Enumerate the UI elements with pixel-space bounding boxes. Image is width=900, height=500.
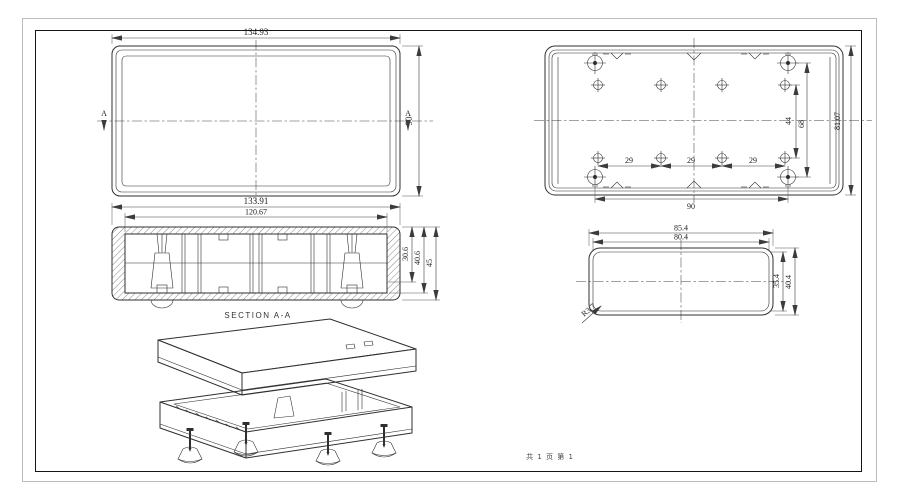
row-pitch-dimension: 44 bbox=[784, 117, 793, 125]
end-outer-width-dimension: 85.4 bbox=[674, 224, 688, 233]
iso-lid bbox=[158, 319, 416, 395]
section-inner-width-dimension: 120.67 bbox=[245, 208, 267, 217]
section-depth1-dimension: 30.6 bbox=[401, 247, 410, 261]
section-depth2-dimension: 40.6 bbox=[413, 251, 422, 265]
pitch-dimension-1: 29 bbox=[625, 156, 633, 165]
section-marker-a-right: A bbox=[405, 109, 411, 118]
section-marker-a-left: A bbox=[101, 109, 107, 118]
small-screw-bosses bbox=[591, 78, 792, 165]
corner-row-pitch-dimension: 68 bbox=[797, 120, 806, 128]
drawing-sheet: 134.93 90 A A bbox=[0, 0, 900, 500]
top-view: 134.93 90 A A bbox=[95, 26, 435, 212]
end-inner-height-dimension: 35.4 bbox=[772, 274, 781, 288]
corner-radius-dimension: R3.7 bbox=[580, 302, 598, 319]
pitch-dimension-2: 29 bbox=[687, 156, 695, 165]
boss-span-dimension: 90 bbox=[687, 202, 695, 211]
pitch-dimension-3: 29 bbox=[749, 156, 757, 165]
section-outer-width-dimension: 133.91 bbox=[244, 196, 269, 206]
end-inner-width-dimension: 80.4 bbox=[674, 233, 688, 242]
end-view: 85.4 80.4 35.4 40.4 R3.7 bbox=[568, 220, 868, 330]
shell-height-dimension: 81.07 bbox=[833, 112, 842, 130]
end-outer-height-dimension: 40.4 bbox=[784, 275, 793, 289]
top-width-dimension: 134.93 bbox=[244, 27, 269, 37]
isometric-exploded-view bbox=[128, 312, 463, 480]
iso-base bbox=[160, 379, 412, 458]
bottom-view: 29 29 29 90 44 68 81.07 bbox=[528, 26, 878, 216]
section-depth3-dimension: 45 bbox=[425, 259, 434, 267]
clip-notches-top bbox=[603, 53, 769, 60]
section-view: 133.91 120.67 30.6 40.6 45 SECTION A-A bbox=[95, 193, 455, 325]
divider-ribs bbox=[182, 234, 330, 293]
clip-notches-bottom bbox=[603, 181, 769, 188]
corner-screw-bosses bbox=[584, 52, 799, 188]
sheet-page-note: 共 1 页 第 1 bbox=[480, 452, 620, 462]
